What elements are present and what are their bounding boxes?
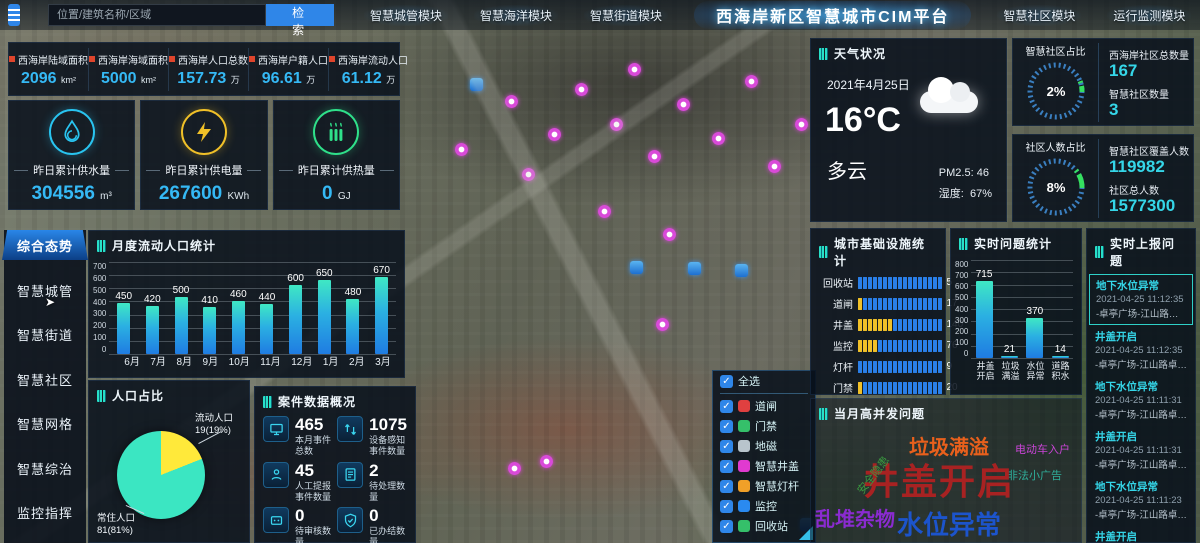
- bar-segment: [868, 340, 872, 352]
- layer-checkbox-row[interactable]: ✓地磁: [713, 436, 815, 456]
- community-stat: 智慧社区数量3: [1109, 86, 1193, 118]
- bar-segment: [863, 319, 867, 331]
- wordcloud-term[interactable]: 电动车入户: [1015, 441, 1070, 457]
- bar-segment: [898, 277, 902, 289]
- bar-segment: [933, 340, 937, 352]
- bar[interactable]: [203, 307, 216, 354]
- bar[interactable]: [1001, 356, 1018, 358]
- bar-value-label: 715: [976, 269, 993, 280]
- layer-label: 地磁: [755, 438, 777, 454]
- y-tick-label: 800: [955, 260, 968, 269]
- x-tick-label: 8月: [176, 357, 192, 369]
- community-population-ratio-panel: 社区人数占比8%智慧社区覆盖人数119982社区总人数1577300: [1012, 134, 1194, 222]
- bar-segment: [908, 340, 912, 352]
- map-marker-icon[interactable]: [628, 63, 641, 76]
- y-tick-label: 0: [964, 349, 968, 358]
- bar-value-label: 420: [144, 294, 161, 305]
- bar-segment: [873, 277, 877, 289]
- stat-label: 西海岸海域面积: [89, 52, 168, 67]
- panel-title-icon: [959, 238, 968, 250]
- supply-card: 昨日累计供电量267600 KWh: [140, 100, 267, 210]
- map-marker-icon[interactable]: [663, 228, 676, 241]
- bar-segment: [908, 277, 912, 289]
- x-tick-label: 11月: [260, 357, 280, 369]
- community-stat-label: 智慧社区数量: [1109, 86, 1193, 101]
- bar-segment: [918, 361, 922, 373]
- report-time: 2021-04-25 11:11:23: [1095, 495, 1187, 506]
- region-stat: 西海岸户籍人口96.61 万: [249, 48, 329, 91]
- case-text: 2待处理数量: [369, 462, 407, 504]
- bar[interactable]: [260, 304, 273, 354]
- bar-segment: [918, 382, 922, 394]
- heat-icon: [313, 109, 359, 155]
- map-marker-icon[interactable]: [656, 318, 669, 331]
- case-stat-item: 0待审核数量: [263, 507, 331, 543]
- bar-segment: [898, 361, 902, 373]
- bar-segment: [888, 361, 892, 373]
- bar-segment: [928, 361, 932, 373]
- map-marker-icon[interactable]: [630, 261, 643, 274]
- tab-module[interactable]: 智慧街道模块: [584, 5, 668, 26]
- supply-value: 0 GJ: [322, 184, 351, 203]
- bar-group: 410: [201, 262, 218, 354]
- search-input[interactable]: [48, 4, 266, 26]
- infra-row: 灯杆9: [819, 359, 937, 374]
- bar-value-label: 600: [287, 273, 304, 284]
- map-marker-icon[interactable]: [508, 462, 521, 475]
- bar-segment: [898, 340, 902, 352]
- bar-segment: [863, 298, 867, 310]
- y-tick-label: 500: [955, 293, 968, 302]
- humidity-value: 67%: [970, 188, 992, 200]
- report-title: 井盖开启: [1095, 329, 1187, 344]
- panel-title-icon: [1095, 246, 1104, 258]
- gauge-label: 社区人数占比: [1026, 139, 1086, 154]
- bar-segment: [868, 277, 872, 289]
- menu-icon[interactable]: [8, 4, 20, 26]
- bar-segment: [918, 319, 922, 331]
- map-marker-icon[interactable]: [712, 132, 725, 145]
- bar-segment: [903, 277, 907, 289]
- tab-module[interactable]: 运行监测模块: [1107, 5, 1191, 26]
- layer-checklist-panel: ✓ 全选 ✓道闸✓门禁✓地磁✓智慧井盖✓智慧灯杆✓监控✓回收站: [712, 370, 816, 543]
- report-item[interactable]: 地下水位异常2021-04-25 11:12:35-卓亭广场-江山路卓亭广…: [1089, 274, 1193, 325]
- bar-segment: [913, 361, 917, 373]
- supply-unit: GJ: [338, 191, 351, 202]
- bar-segment: [928, 319, 932, 331]
- document-icon: [337, 462, 363, 488]
- bar-segment: [873, 298, 877, 310]
- community-stat-value: 1577300: [1109, 197, 1193, 214]
- stat-value: 61.12 万: [342, 71, 396, 87]
- bar[interactable]: [346, 299, 359, 354]
- sidebar-item-3[interactable]: 智慧社区: [4, 370, 86, 389]
- checkbox-checked-icon[interactable]: ✓: [720, 460, 733, 473]
- bar-segment: [918, 277, 922, 289]
- bullet-icon: [9, 56, 15, 62]
- case-value: 0: [295, 507, 331, 524]
- bar-segment: [928, 298, 932, 310]
- panel-title-icon: [819, 408, 828, 420]
- bar-group: 370: [1026, 260, 1043, 358]
- report-item[interactable]: 地下水位异常2021-04-25 11:11:23-卓亭广场-江山路卓亭广…: [1089, 476, 1193, 525]
- map-marker-icon[interactable]: [648, 150, 661, 163]
- gauge-side: 智慧社区占比2%: [1013, 43, 1099, 122]
- tab-module[interactable]: 智慧社区模块: [997, 5, 1081, 26]
- bar-segment: [908, 319, 912, 331]
- map-marker-icon[interactable]: [745, 75, 758, 88]
- frequent-problems-panel: 当月高并发问题 垃圾满溢电动车入户非法小广告井盖开启乱堆杂物水位异常安全隐患: [810, 398, 1082, 543]
- bar-segment: [938, 361, 942, 373]
- bar[interactable]: [175, 297, 188, 354]
- panel-title: 天气状况: [834, 45, 886, 62]
- layer-checkbox-row[interactable]: ✓道闸: [713, 396, 815, 416]
- stat-unit: 万: [306, 75, 315, 85]
- sidebar-header[interactable]: 综合态势: [2, 230, 88, 260]
- bar-segment: [893, 382, 897, 394]
- wordcloud-term[interactable]: 水位异常: [897, 505, 1001, 542]
- cursor-icon: ➤: [45, 295, 56, 309]
- stat-label: 西海岸户籍人口: [249, 52, 328, 67]
- infra-label: 道闸: [819, 296, 853, 311]
- map-marker-icon[interactable]: [598, 205, 611, 218]
- bar-group: 500: [173, 262, 190, 354]
- bar[interactable]: [976, 281, 993, 358]
- infra-row: 道闸17: [819, 296, 937, 311]
- x-axis: 井盖开启垃圾满溢水位异常道路积水: [951, 358, 1081, 382]
- report-item[interactable]: 井盖开启2021-04-25 11:12:35-卓亭广场-江山路卓亭广…: [1089, 326, 1193, 375]
- bar-segment: [898, 382, 902, 394]
- report-item[interactable]: 井盖开启2021-04-25 11:11:31-卓亭广场-江山路卓亭广…: [1089, 426, 1193, 475]
- checkbox-checked-icon[interactable]: ✓: [720, 420, 733, 433]
- bar-segment: [918, 340, 922, 352]
- bar-segment: [923, 319, 927, 331]
- stat-unit: km²: [61, 75, 76, 85]
- bar-segment: [868, 319, 872, 331]
- bar-segment: [903, 340, 907, 352]
- region-stats-panel: 西海岸陆域面积2096 km²西海岸海域面积5000 km²西海岸人口总数157…: [8, 42, 400, 96]
- bar-segment: [858, 382, 862, 394]
- layer-label: 道闸: [755, 398, 777, 414]
- bar-segment: [868, 361, 872, 373]
- layer-checkbox-row[interactable]: ✓门禁: [713, 416, 815, 436]
- report-title: 地下水位异常: [1096, 278, 1186, 293]
- panel-title: 月度流动人口统计: [112, 237, 216, 254]
- bar-segment: [913, 277, 917, 289]
- bar-segment: [883, 340, 887, 352]
- svg-text:8%: 8%: [1046, 180, 1065, 195]
- map-marker-icon[interactable]: [735, 264, 748, 277]
- bar[interactable]: [117, 303, 130, 354]
- bar-segment: [903, 361, 907, 373]
- infra-label: 门禁: [819, 380, 853, 395]
- bar[interactable]: [1026, 318, 1043, 358]
- bar-segment: [938, 298, 942, 310]
- map-marker-icon[interactable]: [575, 83, 588, 96]
- panel-title-icon: [97, 390, 106, 402]
- select-all-row[interactable]: ✓ 全选: [713, 371, 815, 391]
- checkbox-checked-icon[interactable]: ✓: [720, 500, 733, 513]
- panel-title-icon: [819, 246, 828, 258]
- layer-label: 监控: [755, 498, 777, 514]
- select-all-label: 全选: [738, 373, 760, 389]
- bar-segment: [933, 361, 937, 373]
- infra-row: 井盖140: [819, 317, 937, 332]
- case-stat-item: 45人工提报事件数量: [263, 462, 331, 504]
- bar-segment: [858, 298, 862, 310]
- case-label: 待审核数量: [295, 526, 331, 543]
- panel-title: 实时问题统计: [974, 235, 1052, 252]
- bar-segment: [933, 277, 937, 289]
- report-title: 井盖开启: [1095, 529, 1187, 543]
- supply-label: 昨日累计供热量: [279, 162, 394, 178]
- weather-temperature: 16°C: [825, 103, 1006, 137]
- report-address: -卓亭广场-江山路卓亭广…: [1095, 457, 1187, 471]
- bar[interactable]: [289, 285, 302, 354]
- checkbox-checked-icon[interactable]: ✓: [720, 400, 733, 413]
- pie-label-resident: 常住人口81(81%): [97, 513, 135, 537]
- bar[interactable]: [232, 301, 245, 354]
- checkbox-checked-icon[interactable]: ✓: [720, 520, 733, 533]
- bar-segment: [893, 361, 897, 373]
- x-axis: 6月7月8月9月10月11月12月1月2月3月: [89, 354, 404, 369]
- map-marker-icon[interactable]: [548, 128, 561, 141]
- map-marker-icon[interactable]: [610, 118, 623, 131]
- checkbox-checked-icon[interactable]: ✓: [720, 480, 733, 493]
- svg-text:2%: 2%: [1046, 84, 1065, 99]
- y-tick-label: 700: [93, 262, 106, 271]
- bar-segment: [878, 319, 882, 331]
- bar-value-label: 21: [1004, 344, 1015, 355]
- sidebar-item-4[interactable]: 智慧网格: [4, 414, 86, 433]
- bar-group: 650: [316, 262, 333, 354]
- water-drop-icon: [49, 109, 95, 155]
- layer-type-icon: [738, 480, 750, 492]
- bar-segment: [908, 298, 912, 310]
- sidebar-item-5[interactable]: 智慧综治: [4, 459, 86, 478]
- infra-row: 门禁20: [819, 380, 937, 395]
- bar-segment: [863, 361, 867, 373]
- pie-label-floating: 流动人口19(19%): [195, 413, 233, 437]
- gridline: [971, 358, 1073, 359]
- bar-segment: [893, 319, 897, 331]
- y-tick-label: 700: [955, 271, 968, 280]
- y-tick-label: 300: [955, 316, 968, 325]
- monitor-icon: [263, 416, 289, 442]
- tab-module[interactable]: 智慧海洋模块: [474, 5, 558, 26]
- map-marker-icon[interactable]: [505, 95, 518, 108]
- supply-card: 昨日累计供水量304556 m³: [8, 100, 135, 210]
- case-value: 465: [295, 416, 331, 433]
- report-title: 井盖开启: [1095, 429, 1187, 444]
- bullet-icon: [249, 56, 255, 62]
- map-marker-icon[interactable]: [688, 262, 701, 275]
- bar-segment: [938, 340, 942, 352]
- community-stat-value: 3: [1109, 101, 1193, 118]
- report-item[interactable]: 井盖开启2021-04-25 11:11:23-卓亭广场-江山路卓亭广…: [1089, 526, 1193, 543]
- bar-segment: [878, 277, 882, 289]
- layer-label: 智慧灯杆: [755, 478, 799, 494]
- bar-segment: [863, 340, 867, 352]
- infra-row: 监控76: [819, 338, 937, 353]
- report-item[interactable]: 地下水位异常2021-04-25 11:11:31-卓亭广场-江山路卓亭广…: [1089, 376, 1193, 425]
- bar-segment: [883, 319, 887, 331]
- stat-label: 西海岸流动人口: [329, 52, 408, 67]
- community-stats: 西海岸社区总数量167智慧社区数量3: [1099, 47, 1193, 118]
- bar-segment: [873, 361, 877, 373]
- segmented-bar: [858, 340, 942, 352]
- bar-group: 21: [1001, 260, 1018, 358]
- layer-type-icon: [738, 400, 750, 412]
- bar-segment: [873, 382, 877, 394]
- case-text: 0已办结数量: [369, 507, 407, 543]
- module-tabs: 智慧城管模块 智慧海洋模块 智慧街道模块 西海岸新区智慧城市CIM平台 智慧社区…: [364, 1, 1200, 29]
- case-label: 设备感知事件数量: [369, 435, 407, 458]
- bar-segment: [908, 382, 912, 394]
- map-marker-icon[interactable]: [470, 78, 483, 91]
- bar-segment: [878, 361, 882, 373]
- bar[interactable]: [375, 277, 388, 354]
- bar-value-label: 650: [316, 268, 333, 279]
- stat-unit: km²: [141, 75, 156, 85]
- x-tick-label: 9月: [203, 357, 219, 369]
- wordcloud-term[interactable]: 乱堆杂物: [815, 503, 895, 532]
- bar-segment: [933, 319, 937, 331]
- review-icon: [263, 507, 289, 533]
- bar-group: 14: [1052, 260, 1069, 358]
- x-tick-label: 垃圾满溢: [1001, 361, 1019, 382]
- map-marker-icon[interactable]: [522, 168, 535, 181]
- layer-checkbox-row[interactable]: ✓监控: [713, 496, 815, 516]
- layer-type-icon: [738, 500, 750, 512]
- sidebar-item-2[interactable]: 智慧街道: [4, 325, 86, 344]
- case-value: 1075: [369, 416, 407, 433]
- segmented-bar: [858, 361, 942, 373]
- bar-segment: [923, 361, 927, 373]
- map-marker-icon[interactable]: [768, 160, 781, 173]
- search-box: 检 索: [48, 4, 334, 26]
- layer-label: 智慧井盖: [755, 458, 799, 474]
- case-stat-item: 465本月事件总数: [263, 416, 331, 458]
- stat-label: 西海岸陆域面积: [9, 52, 88, 67]
- tab-module[interactable]: 智慧城管模块: [364, 5, 448, 26]
- bar-value-label: 440: [259, 292, 276, 303]
- case-text: 465本月事件总数: [295, 416, 331, 458]
- map-marker-icon[interactable]: [455, 143, 468, 156]
- layer-checkbox-row[interactable]: ✓智慧井盖: [713, 456, 815, 476]
- case-stat-item: 0已办结数量: [337, 507, 407, 543]
- search-button[interactable]: 检 索: [266, 4, 334, 26]
- bar-segment: [858, 361, 862, 373]
- top-bar: 检 索 智慧城管模块 智慧海洋模块 智慧街道模块 西海岸新区智慧城市CIM平台 …: [0, 0, 1200, 30]
- wordcloud-term[interactable]: 非法小广告: [1007, 467, 1062, 483]
- y-tick-label: 300: [93, 309, 106, 318]
- percentage-gauge: 8%: [1025, 156, 1087, 218]
- sidebar-item-1[interactable]: 智慧城管➤: [4, 281, 86, 300]
- community-stats: 智慧社区覆盖人数119982社区总人数1577300: [1099, 143, 1193, 214]
- layer-label: 回收站: [755, 518, 788, 534]
- bar[interactable]: [146, 306, 159, 354]
- infra-label: 回收站: [819, 275, 853, 290]
- bar-group: 450: [115, 262, 132, 354]
- supply-unit: m³: [100, 191, 112, 202]
- sidebar-item-6[interactable]: 监控指挥: [4, 503, 86, 522]
- supply-value: 304556 m³: [31, 184, 111, 203]
- x-tick-label: 12月: [291, 357, 312, 369]
- y-tick-label: 600: [955, 282, 968, 291]
- smart-city-dashboard: 检 索 智慧城管模块 智慧海洋模块 智慧街道模块 西海岸新区智慧城市CIM平台 …: [0, 0, 1200, 543]
- panel-title: 人口占比: [112, 387, 164, 404]
- bar-segment: [883, 277, 887, 289]
- stat-unit: 万: [386, 75, 395, 85]
- checkbox-checked-icon[interactable]: ✓: [720, 440, 733, 453]
- bar-group: 600: [287, 262, 304, 354]
- y-tick-label: 600: [93, 274, 106, 283]
- platform-title: 西海岸新区智慧城市CIM平台: [694, 1, 971, 29]
- bar-segment: [923, 277, 927, 289]
- map-marker-icon[interactable]: [677, 98, 690, 111]
- layer-type-icon: [738, 420, 750, 432]
- bar-segment: [858, 319, 862, 331]
- gauge-side: 社区人数占比8%: [1013, 139, 1099, 218]
- bar-segment: [888, 319, 892, 331]
- infrastructure-stats-panel: 城市基础设施统计 回收站5道闸17井盖140监控76灯杆9门禁20: [810, 228, 946, 395]
- bar-segment: [868, 298, 872, 310]
- map-marker-icon[interactable]: [540, 455, 553, 468]
- map-marker-icon[interactable]: [795, 118, 808, 131]
- checkbox-checked-icon[interactable]: ✓: [720, 375, 733, 388]
- bar-segment: [888, 340, 892, 352]
- bar-segment: [923, 340, 927, 352]
- realtime-report-panel: 实时上报问题 地下水位异常2021-04-25 11:12:35-卓亭广场-江山…: [1086, 228, 1196, 543]
- bullet-icon: [329, 56, 335, 62]
- smart-community-ratio-panel: 智慧社区占比2%西海岸社区总数量167智慧社区数量3: [1012, 38, 1194, 126]
- x-tick-label: 6月: [124, 357, 140, 369]
- bar-segment: [873, 319, 877, 331]
- y-tick-label: 400: [955, 305, 968, 314]
- case-text: 45人工提报事件数量: [295, 462, 331, 504]
- segmented-bar: [858, 319, 942, 331]
- panel-title-icon: [263, 396, 272, 408]
- region-stat: 西海岸流动人口61.12 万: [329, 48, 408, 91]
- bar[interactable]: [318, 280, 331, 354]
- stat-label: 西海岸人口总数: [169, 52, 248, 67]
- case-value: 0: [369, 507, 407, 524]
- bar-chart: 7152137014: [971, 260, 1073, 358]
- bar-segment: [888, 382, 892, 394]
- gauge-label: 智慧社区占比: [1026, 43, 1086, 58]
- bar-value-label: 480: [345, 287, 362, 298]
- case-label: 已办结数量: [369, 526, 407, 543]
- bar[interactable]: [1052, 356, 1069, 358]
- bars: 7152137014: [971, 260, 1073, 358]
- layer-checkbox-row[interactable]: ✓智慧灯杆: [713, 476, 815, 496]
- bar-value-label: 460: [230, 289, 247, 300]
- bar-segment: [883, 298, 887, 310]
- bar-segment: [858, 340, 862, 352]
- case-value: 2: [369, 462, 407, 479]
- panel-title: 实时上报问题: [1110, 235, 1187, 269]
- bar-value-label: 410: [201, 295, 218, 306]
- report-address: -卓亭广场-江山路卓亭广…: [1096, 306, 1186, 320]
- divider: [720, 393, 808, 394]
- case-stat-item: 2待处理数量: [337, 462, 407, 504]
- bar-segment: [903, 319, 907, 331]
- panel-title: 当月高并发问题: [834, 405, 925, 422]
- report-title: 地下水位异常: [1095, 379, 1187, 394]
- supply-label: 昨日累计供水量: [14, 162, 129, 178]
- case-value: 45: [295, 462, 331, 479]
